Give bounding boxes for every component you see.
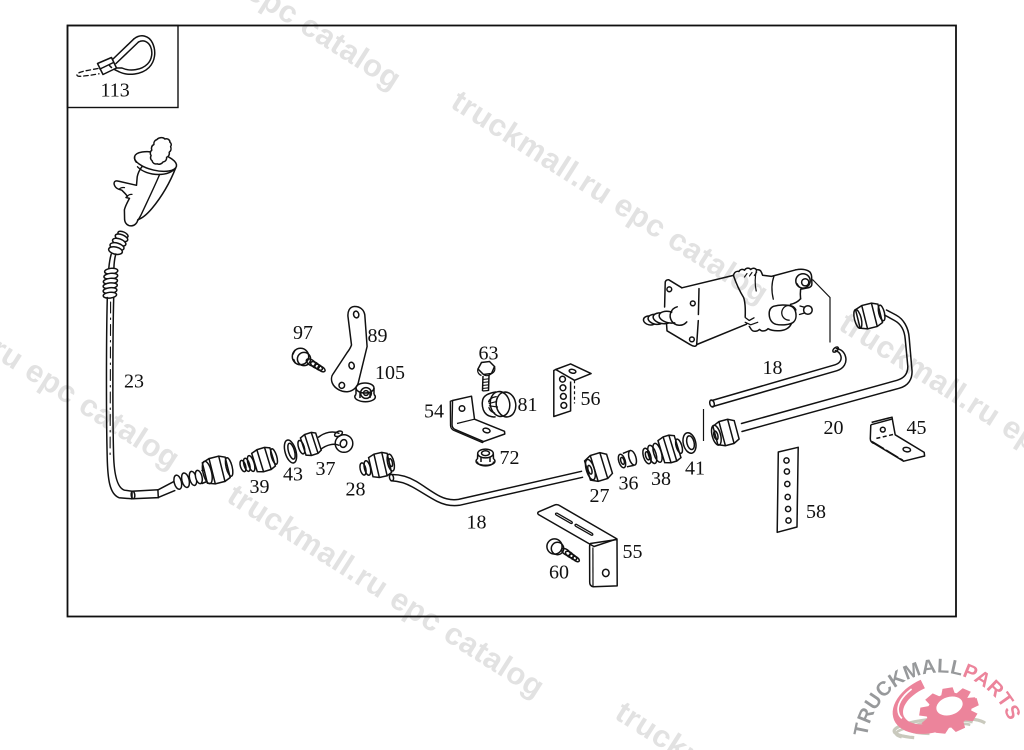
svg-text:45: 45 — [907, 417, 927, 439]
svg-text:18: 18 — [763, 357, 783, 379]
svg-text:72: 72 — [500, 447, 520, 469]
svg-text:39: 39 — [250, 476, 270, 498]
svg-text:20: 20 — [824, 417, 844, 439]
svg-text:43: 43 — [283, 464, 303, 486]
svg-text:81: 81 — [518, 394, 538, 416]
svg-text:63: 63 — [479, 343, 499, 365]
svg-text:60: 60 — [549, 562, 569, 584]
svg-text:56: 56 — [581, 388, 601, 410]
svg-text:55: 55 — [623, 541, 643, 563]
svg-text:38: 38 — [651, 468, 671, 490]
svg-text:36: 36 — [619, 473, 639, 495]
svg-text:23: 23 — [124, 370, 144, 392]
svg-text:89: 89 — [368, 325, 388, 347]
svg-text:54: 54 — [424, 401, 444, 423]
svg-text:27: 27 — [590, 485, 610, 507]
svg-text:41: 41 — [685, 458, 705, 480]
svg-text:18: 18 — [467, 512, 487, 534]
svg-text:58: 58 — [806, 501, 826, 523]
svg-text:105: 105 — [375, 362, 405, 384]
svg-text:37: 37 — [316, 458, 336, 480]
svg-text:97: 97 — [293, 322, 313, 344]
svg-text:113: 113 — [101, 80, 130, 102]
svg-text:28: 28 — [346, 479, 366, 501]
